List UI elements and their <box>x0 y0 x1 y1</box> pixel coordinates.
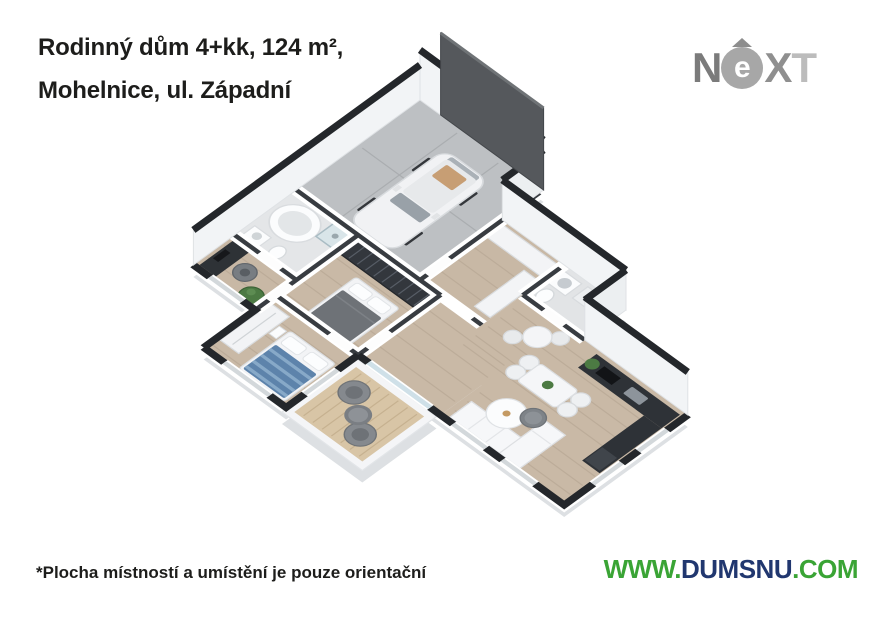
website-tld: .COM <box>792 554 858 584</box>
brand-logo: N e X T <box>692 44 817 92</box>
logo-letter-t: T <box>791 44 817 92</box>
website-url: WWW.DUMSNU.COM <box>604 554 858 585</box>
title-line-1: Rodinný dům 4+kk, 124 m², <box>38 26 343 69</box>
disclaimer-note: *Plocha místností a umístění je pouze or… <box>36 563 426 583</box>
real-estate-floorplan-image: Rodinný dům 4+kk, 124 m², Mohelnice, ul.… <box>0 0 894 625</box>
logo-letter-n: N <box>692 44 720 92</box>
page-title: Rodinný dům 4+kk, 124 m², Mohelnice, ul.… <box>38 26 343 112</box>
logo-letter-x: X <box>764 44 791 92</box>
logo-roof-caret-icon <box>732 38 752 47</box>
website-domain: DUMSNU <box>681 554 792 584</box>
logo-letter-e: e <box>734 53 751 83</box>
logo-letter-e-circle: e <box>721 47 763 89</box>
title-line-2: Mohelnice, ul. Západní <box>38 69 343 112</box>
website-www: WWW. <box>604 554 681 584</box>
